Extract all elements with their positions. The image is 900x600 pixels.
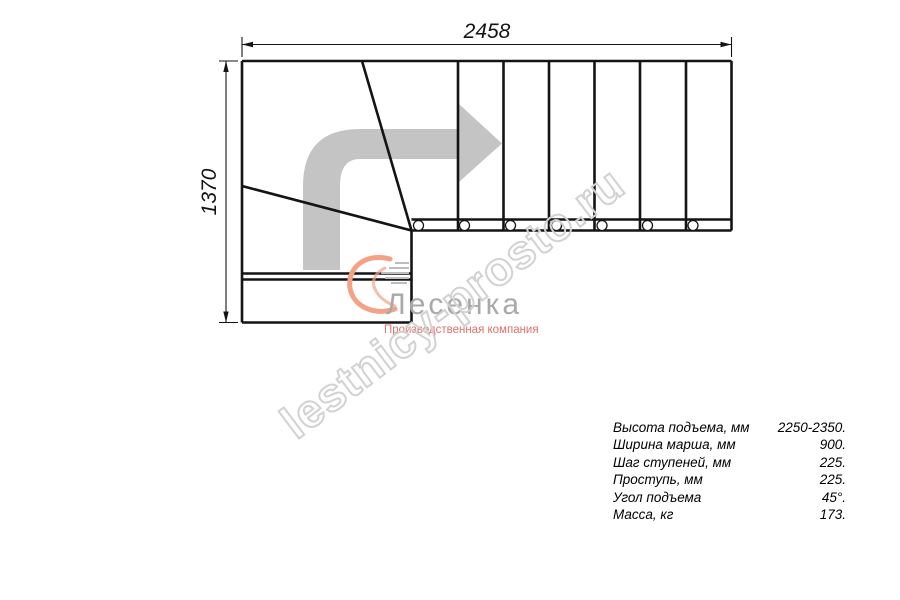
spec-label: Высота подъема, мм — [613, 419, 749, 436]
spec-value: 900. — [820, 436, 846, 453]
logo-stair-lines — [381, 263, 409, 283]
spec-row: Шаг ступеней, мм 225. — [613, 454, 846, 471]
specs-table: Высота подъема, мм 2250-2350. Ширина мар… — [613, 419, 846, 523]
spec-label: Шаг ступеней, мм — [613, 454, 731, 471]
spec-row: Ширина марша, мм 900. — [613, 436, 846, 453]
spec-row: Угол подъема 45°. — [613, 489, 846, 506]
spec-row: Проступь, мм 225. — [613, 471, 846, 488]
logo-name: Лесенка — [386, 290, 522, 320]
drawing-canvas: 2458 1370 Лесенка Производственная компа… — [0, 0, 900, 600]
logo-tagline: Производственная компания — [384, 324, 539, 336]
company-logo: Лесенка Производственная компания — [345, 254, 560, 344]
spec-label: Проступь, мм — [613, 471, 703, 488]
left-dimension-label: 1370 — [198, 168, 221, 215]
spec-label: Угол подъема — [613, 489, 701, 506]
spec-row: Высота подъема, мм 2250-2350. — [613, 419, 846, 436]
spec-value: 225. — [820, 454, 846, 471]
spec-label: Масса, кг — [613, 506, 673, 523]
spec-row: Масса, кг 173. — [613, 506, 846, 523]
top-dimension-label: 2458 — [463, 20, 511, 43]
direction-arrow — [303, 104, 502, 270]
spec-value: 173. — [820, 506, 846, 523]
baluster-circles — [414, 221, 699, 231]
spec-label: Ширина марша, мм — [613, 436, 736, 453]
spec-value: 2250-2350. — [778, 419, 846, 436]
spec-value: 45°. — [822, 489, 846, 506]
spec-value: 225. — [820, 471, 846, 488]
